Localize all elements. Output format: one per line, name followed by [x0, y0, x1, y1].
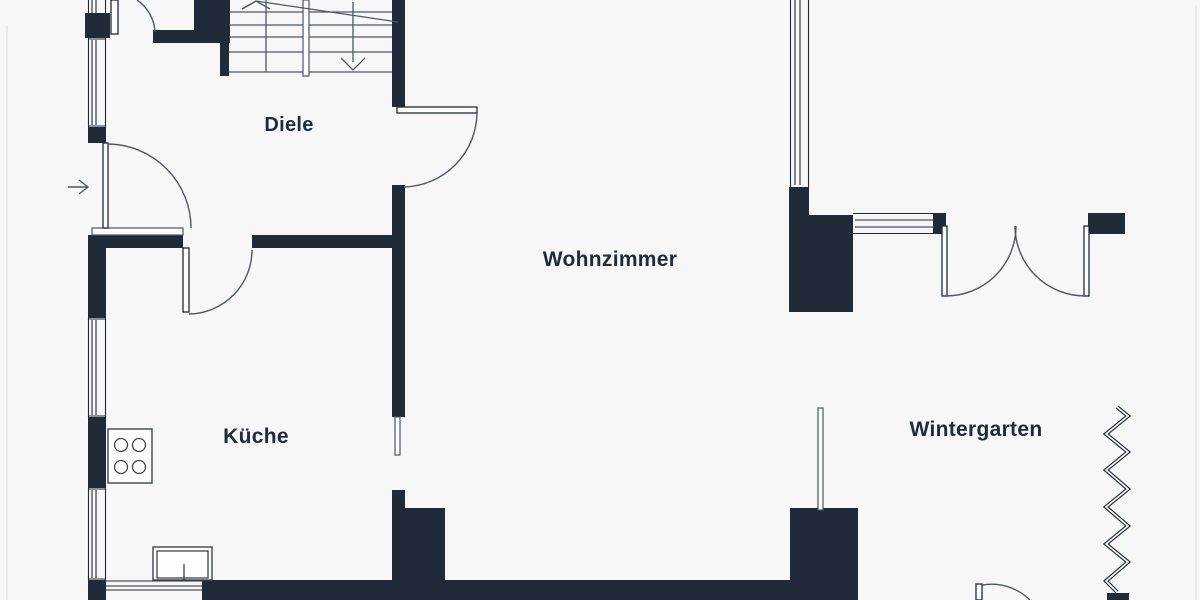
door-diele-top	[111, 0, 155, 34]
entrance-door	[103, 143, 191, 228]
french-door-wintergarten	[942, 226, 1089, 296]
room-label-wohnzimmer: Wohnzimmer	[543, 248, 677, 271]
floor-plan: Diele Wohnzimmer Küche Wintergarten	[0, 0, 1200, 600]
window-left-middle	[89, 318, 106, 417]
stove-icon	[108, 429, 152, 483]
door-diele-kueche	[183, 248, 252, 314]
floor-plan-svg: Diele Wohnzimmer Küche Wintergarten	[0, 0, 1200, 600]
zigzag-break-line-icon	[1106, 407, 1129, 600]
partition-post-right	[818, 408, 823, 510]
staircase	[229, 0, 398, 76]
window-left-upper	[89, 38, 106, 127]
door-diele-wohnzimmer	[397, 107, 477, 187]
wall-face-band	[92, 228, 183, 235]
entrance-arrow-icon	[68, 180, 88, 194]
window-livingroom-right	[791, 0, 809, 187]
stair-handrail	[303, 0, 309, 76]
partition-post-left	[395, 417, 400, 455]
window-left-lower	[89, 488, 106, 580]
room-label-wintergarten: Wintergarten	[910, 418, 1043, 441]
window-kitchen-bottom	[106, 581, 202, 590]
walls	[85, 0, 1125, 600]
room-label-kueche: Küche	[223, 425, 289, 448]
sink-icon	[153, 547, 212, 580]
window-left-top	[89, 0, 106, 13]
door-wintergarten-bottom	[976, 584, 1030, 600]
window-wintergarten-top	[853, 214, 933, 234]
room-label-diele: Diele	[264, 114, 313, 136]
